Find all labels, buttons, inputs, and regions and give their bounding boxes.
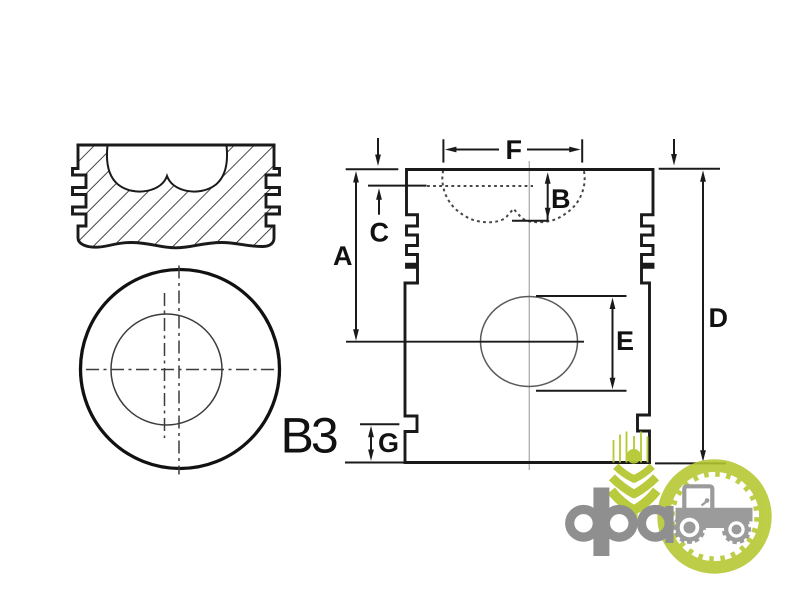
svg-text:E: E [616,326,634,356]
svg-text:B3: B3 [280,408,336,464]
svg-text:D: D [708,303,728,333]
svg-text:F: F [505,135,522,165]
svg-text:C: C [369,218,389,248]
svg-text:G: G [378,428,399,458]
svg-text:A: A [333,241,353,271]
svg-text:B: B [551,184,571,214]
